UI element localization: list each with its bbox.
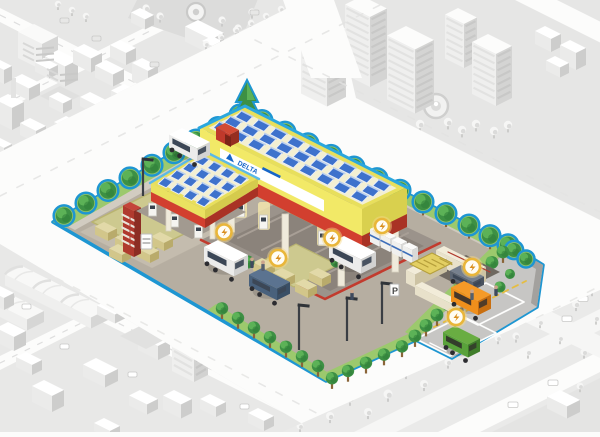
svg-text:P: P [392,286,398,296]
